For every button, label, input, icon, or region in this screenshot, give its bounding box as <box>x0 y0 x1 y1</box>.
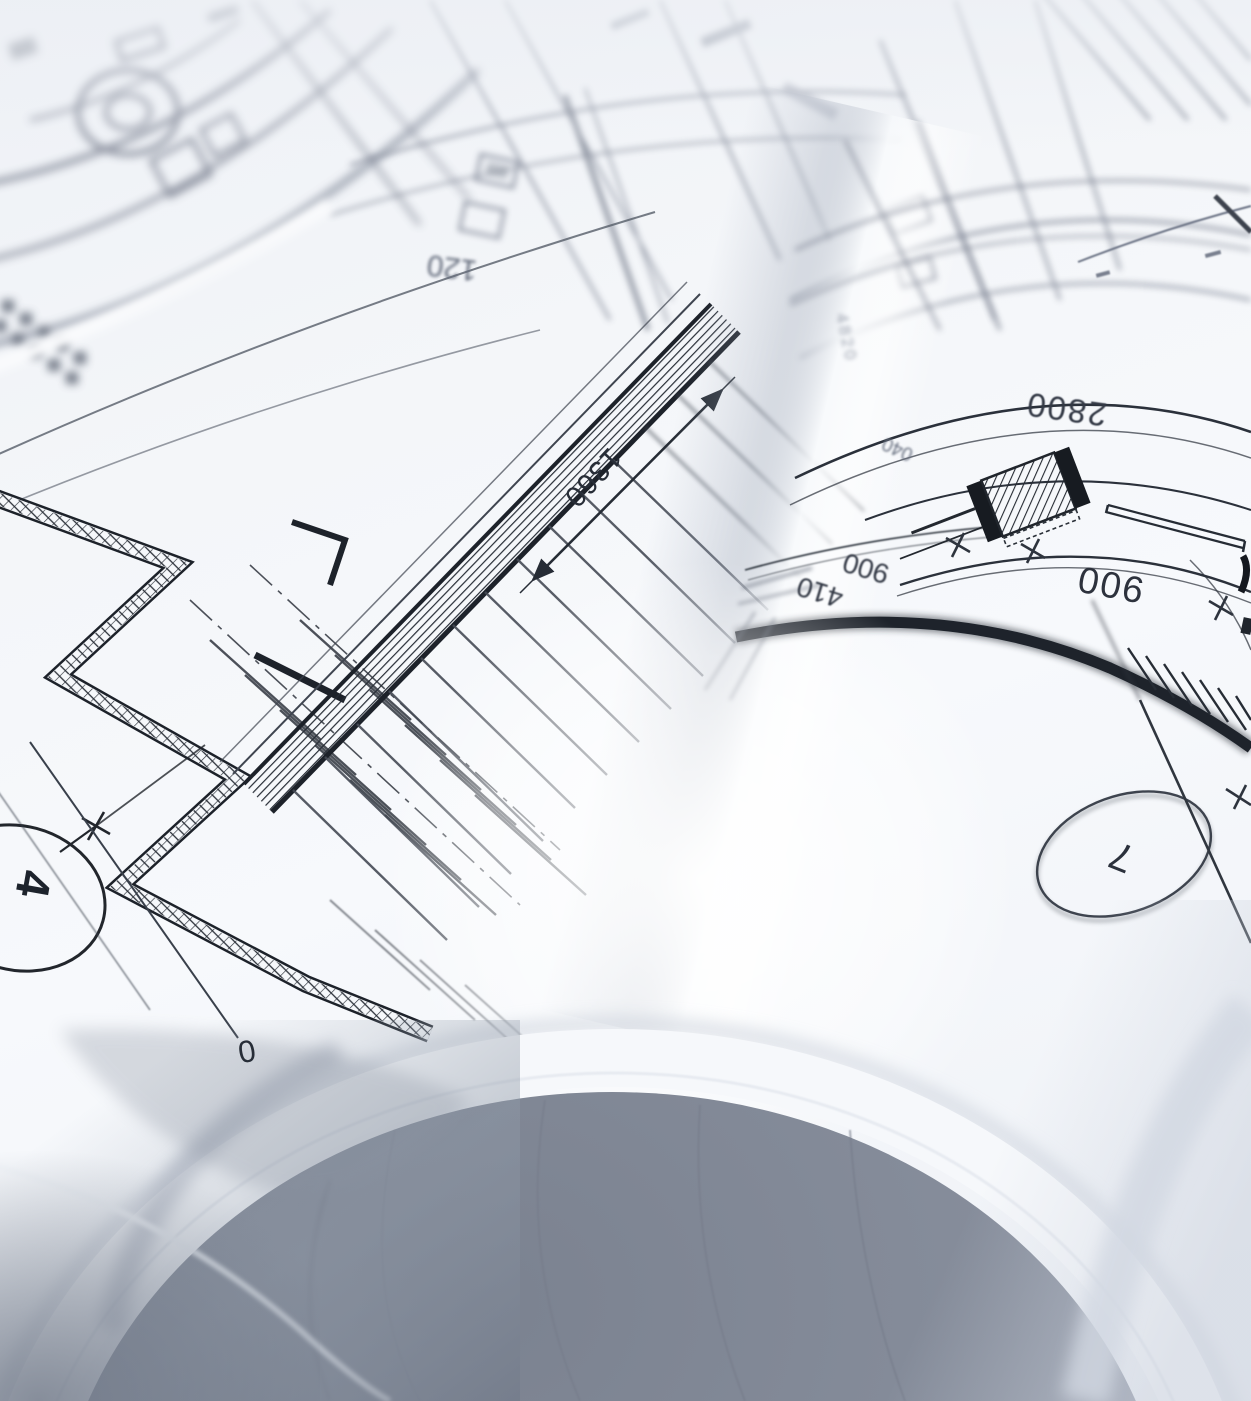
blueprint-photo: 120 4820 1360 2800 900 410 900 040 0 4 7 <box>0 0 1251 1401</box>
bottom-left-deep-shadow <box>0 1150 320 1401</box>
detail-marker-4-circle <box>0 745 205 990</box>
door-leaf-lines <box>1106 505 1245 552</box>
bottom-right-shading <box>880 900 1251 1401</box>
paper-curl-edge <box>0 205 330 368</box>
top-light-veil <box>0 0 1251 150</box>
dimension-label-120: 120 <box>425 247 479 287</box>
right-edge-marks <box>1240 556 1251 635</box>
blueprint-artwork <box>0 0 1251 1401</box>
zigzag-wall-section <box>0 495 430 1034</box>
